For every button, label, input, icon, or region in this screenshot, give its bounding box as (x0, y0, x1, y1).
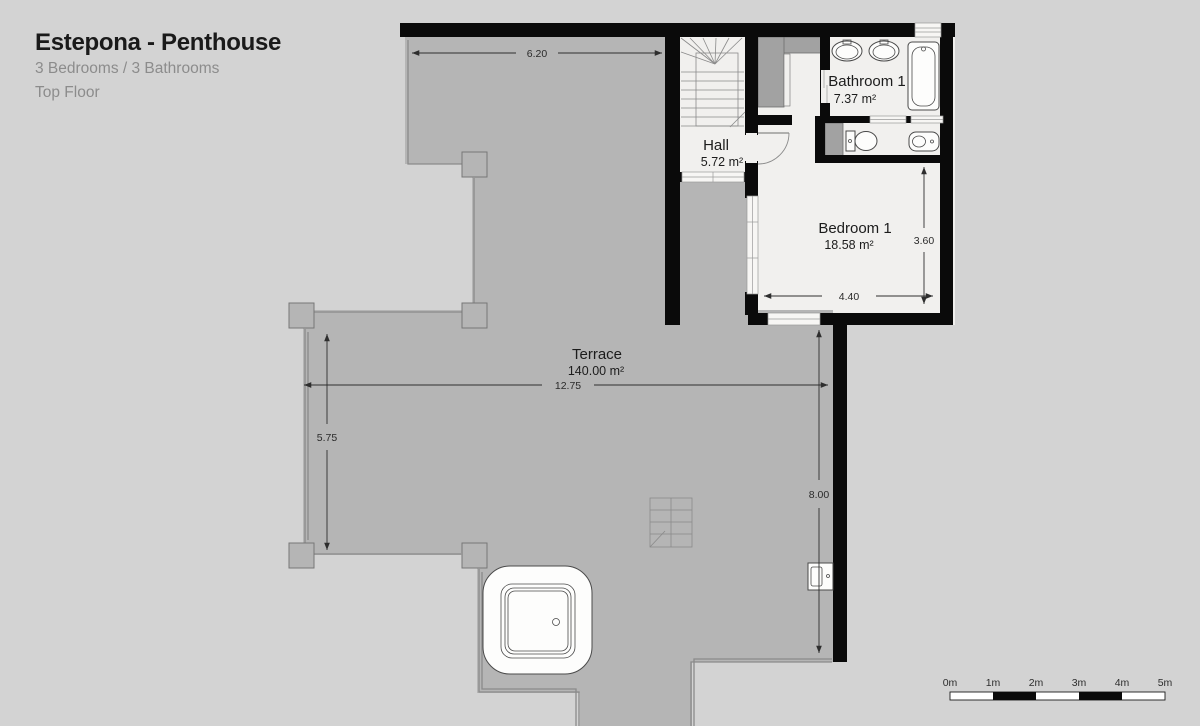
hall-label: Hall (703, 137, 729, 154)
outdoor-sink (808, 563, 833, 590)
floor-plan-page: 6.20 12.75 5.75 3.60 4.40 8.00 Bathroom … (0, 0, 1200, 726)
dim-terrace-width: 12.75 (555, 380, 581, 392)
dim-terrace-right-height: 8.00 (809, 489, 830, 501)
terrace-label: Terrace (572, 346, 622, 363)
floor-plan-svg: 6.20 12.75 5.75 3.60 4.40 8.00 Bathroom … (0, 0, 1200, 726)
staircase (680, 37, 745, 127)
dim-bedroom-height: 3.60 (914, 235, 935, 247)
bathroom1-label: Bathroom 1 (828, 73, 906, 90)
shower-tray (825, 123, 843, 157)
page-floor: Top Floor (35, 84, 100, 101)
page-subtitle: 3 Bedrooms / 3 Bathrooms (35, 60, 220, 77)
bidet (909, 132, 939, 151)
bathtub (908, 42, 939, 110)
scale-0: 0m (943, 677, 958, 689)
hall-area: 5.72 m² (701, 155, 743, 169)
dim-bedroom-width: 4.40 (839, 291, 860, 303)
page-title: Estepona - Penthouse (35, 29, 281, 56)
bedroom1-label: Bedroom 1 (818, 220, 891, 237)
dim-terrace-top-width: 6.20 (527, 48, 548, 60)
scale-2: 2m (1029, 677, 1044, 689)
scale-1: 1m (986, 677, 1001, 689)
jacuzzi (483, 566, 592, 674)
bedroom1-area: 18.58 m² (824, 238, 873, 252)
terrace-area-label: 140.00 m² (568, 364, 624, 378)
bathroom1-area: 7.37 m² (834, 92, 876, 106)
scale-4: 4m (1115, 677, 1130, 689)
dim-terrace-left-height: 5.75 (317, 432, 338, 444)
scale-5: 5m (1158, 677, 1173, 689)
scale-3: 3m (1072, 677, 1087, 689)
toilet (846, 131, 877, 151)
